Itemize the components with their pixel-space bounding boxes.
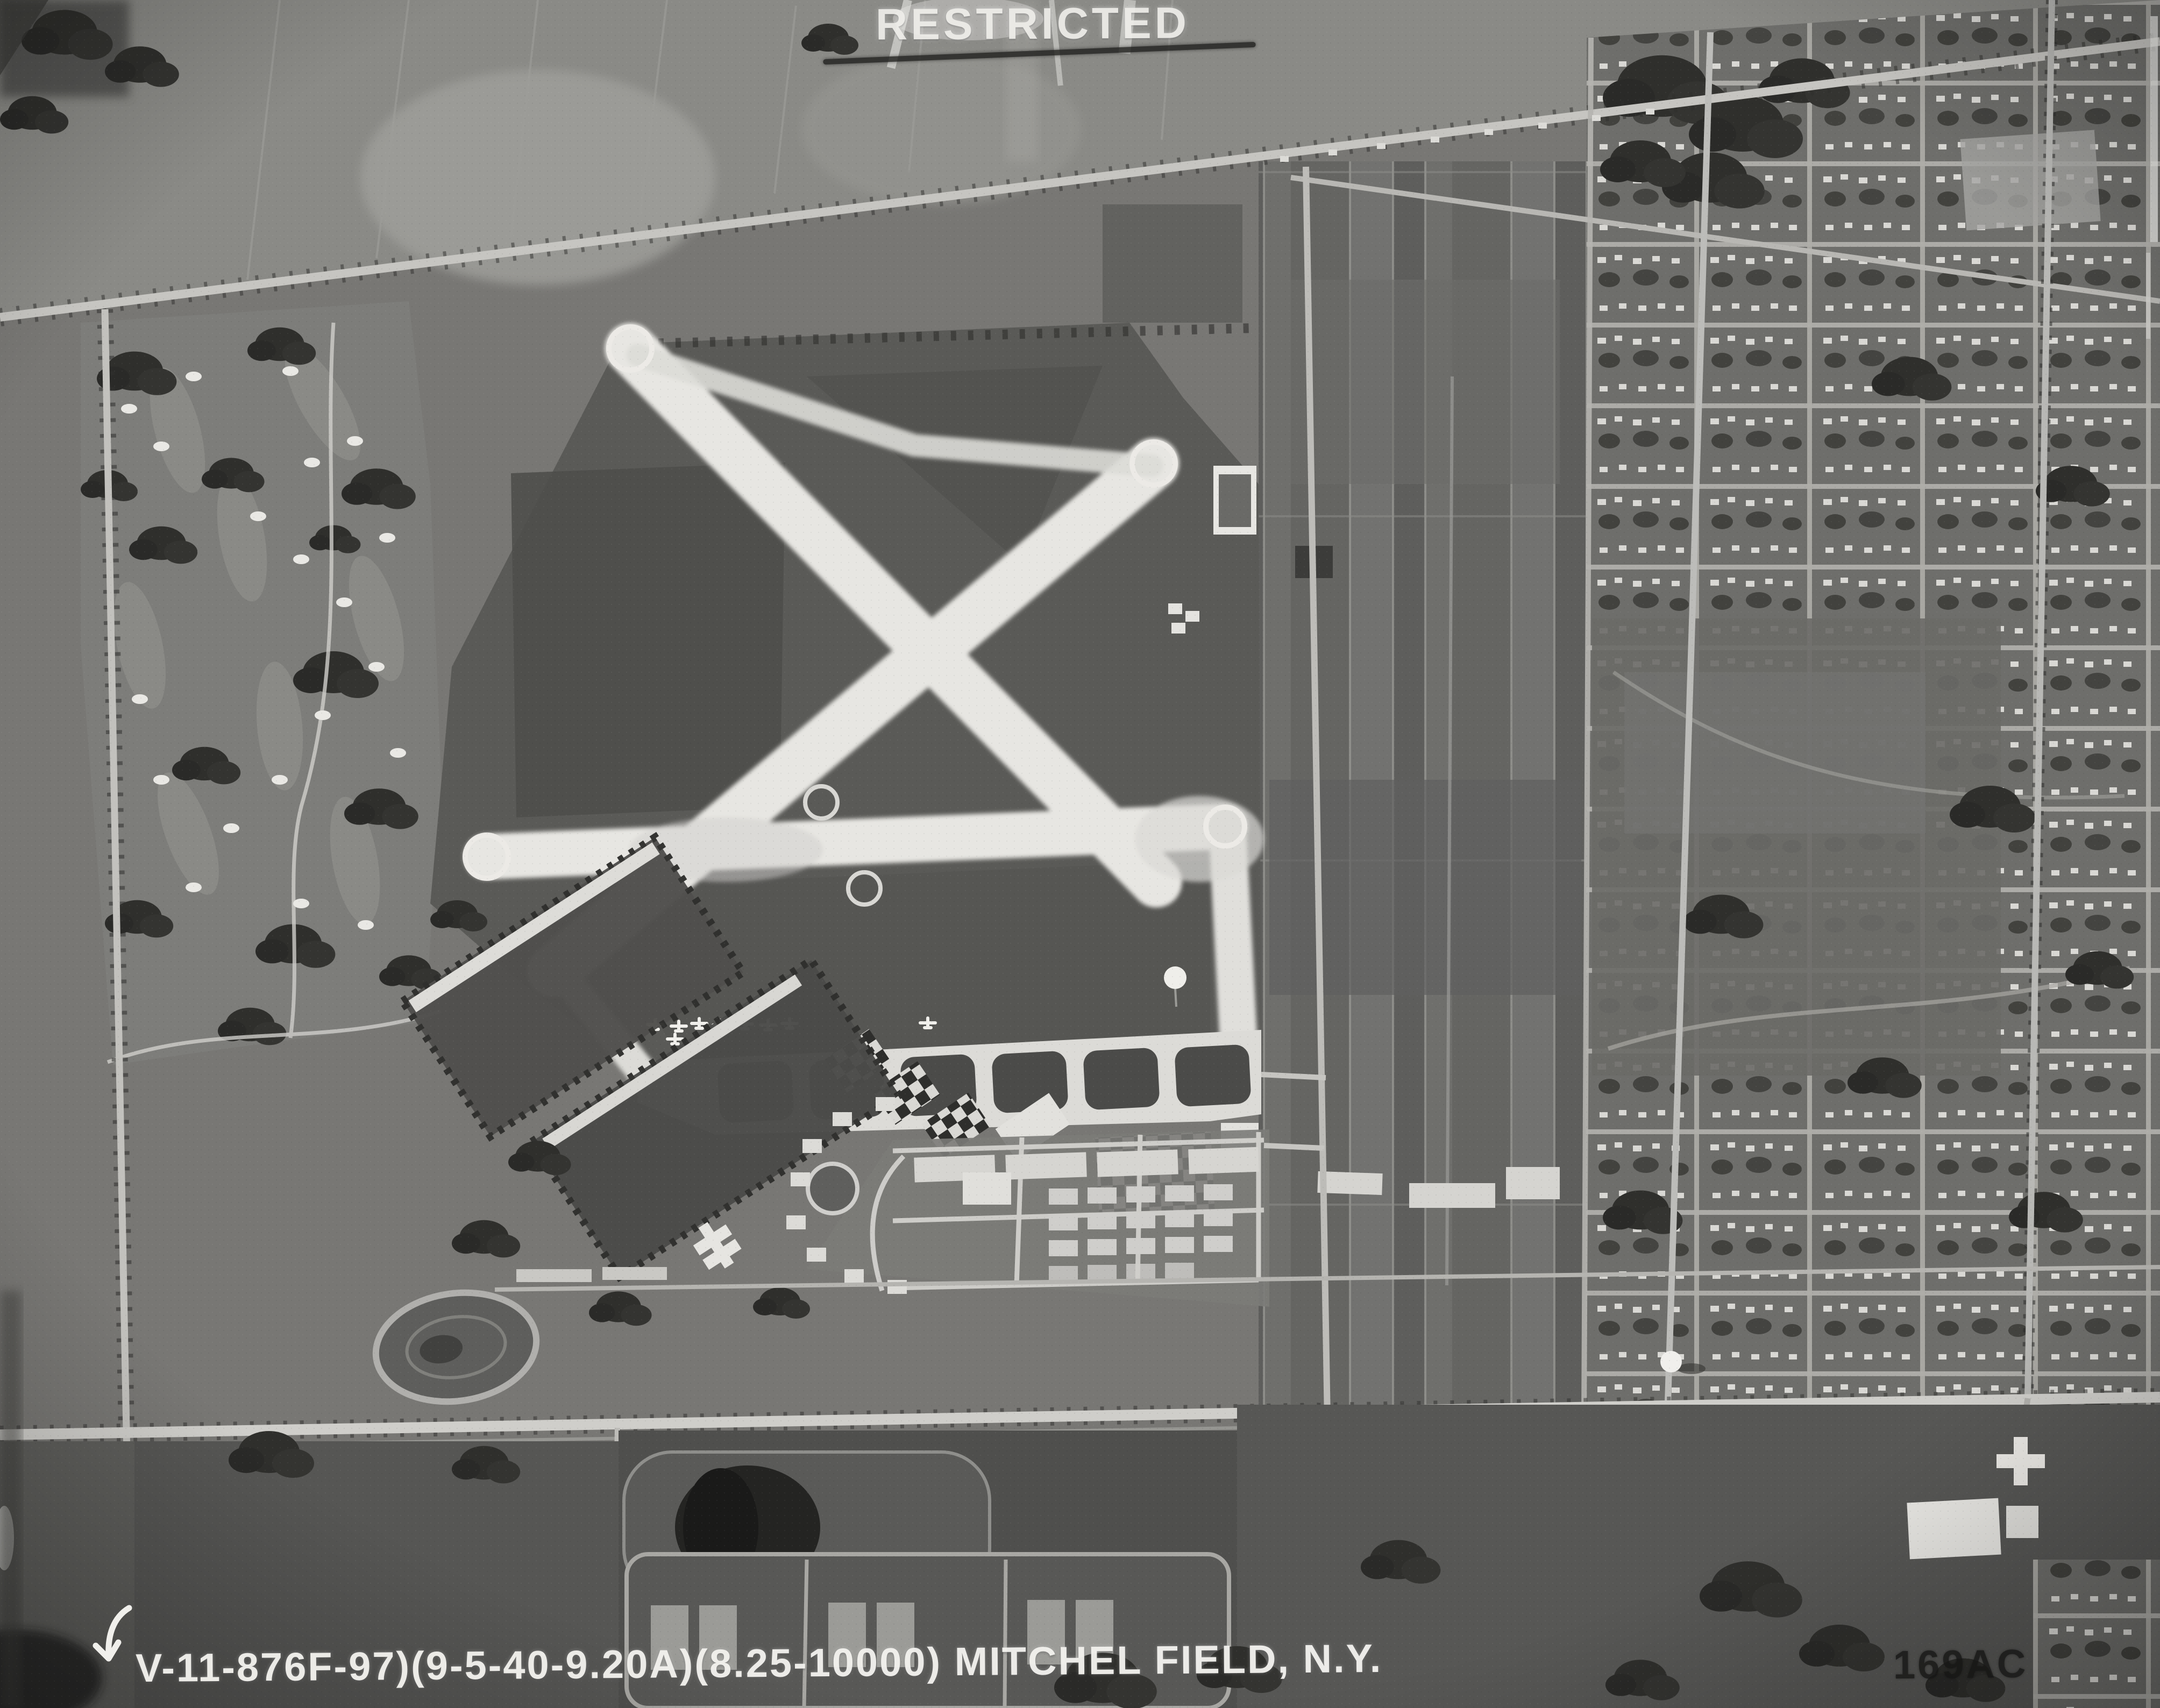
vignette — [0, 0, 2160, 1708]
photo-caption: V-11-876F-97)(9-5-40-9.20A)(8.25-10000) … — [136, 1639, 1383, 1688]
aerial-photo-mitchel-field: RESTRICTED V-11-876F-97)(9-5-40-9.20A)(8… — [0, 0, 2160, 1708]
aerial-photo-scene — [0, 0, 2160, 1708]
classification-stamp: RESTRICTED — [876, 1, 1190, 47]
negative-number-stamp: 169AC — [1893, 1644, 2028, 1685]
